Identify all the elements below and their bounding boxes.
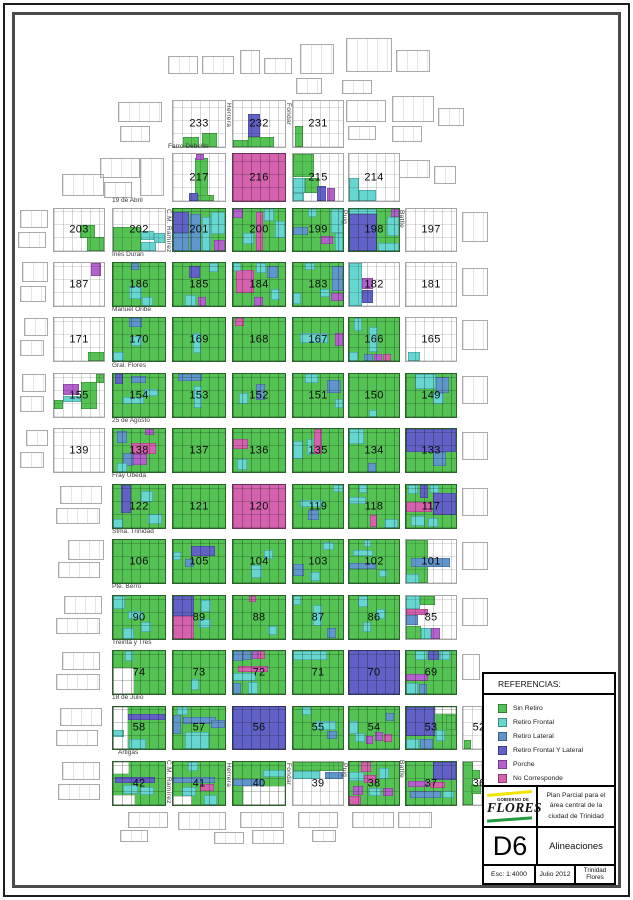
parcel bbox=[115, 374, 123, 384]
map-block-184: 184 bbox=[232, 262, 286, 307]
map-block-215: 215 bbox=[292, 153, 344, 202]
map-block-150: 150 bbox=[348, 373, 400, 418]
parcel bbox=[406, 596, 420, 609]
fringe-parcel bbox=[462, 654, 480, 680]
fringe-parcel bbox=[68, 540, 104, 560]
block-number: 170 bbox=[113, 333, 165, 345]
parcel bbox=[421, 628, 431, 639]
block-number: 73 bbox=[173, 666, 225, 678]
block-number: 165 bbox=[406, 333, 456, 345]
logo-flores-text: FLORES bbox=[487, 800, 542, 816]
parcel bbox=[87, 237, 104, 251]
fringe-parcel bbox=[64, 596, 102, 614]
sheet-row: D6 Alineaciones bbox=[484, 828, 614, 866]
parcel bbox=[189, 193, 198, 201]
block-number: 71 bbox=[293, 666, 343, 678]
street-name: Artigas bbox=[118, 749, 138, 756]
street-name: Stma. Trinidad bbox=[112, 528, 154, 535]
parcel bbox=[233, 209, 243, 218]
map-block-186: 186 bbox=[112, 262, 166, 307]
parcel bbox=[293, 651, 327, 660]
parcel bbox=[198, 297, 206, 306]
map-block-155: 155 bbox=[53, 373, 105, 418]
map-block-165: 165 bbox=[405, 317, 457, 362]
parcel bbox=[419, 684, 427, 694]
parcel bbox=[406, 739, 419, 749]
street-name: C.M. Ramírez bbox=[165, 209, 172, 253]
map-block-187: 187 bbox=[53, 262, 105, 307]
parcel bbox=[321, 236, 333, 244]
street-name: Inés Duran bbox=[112, 251, 144, 258]
parcel bbox=[141, 242, 156, 251]
block-number: 53 bbox=[406, 722, 456, 734]
fringe-parcel bbox=[438, 108, 464, 126]
map-block-216: 216 bbox=[232, 153, 286, 202]
street-name: Fray Ubeda bbox=[112, 472, 146, 479]
parcel bbox=[198, 195, 214, 201]
legend-item: Retiro Frontal Y Lateral bbox=[498, 743, 614, 757]
legend-label: No Corresponde bbox=[513, 775, 563, 782]
block-number: 183 bbox=[293, 278, 343, 290]
legend-swatch bbox=[498, 704, 507, 713]
parcel bbox=[359, 485, 367, 493]
parcel bbox=[364, 540, 371, 547]
parcel bbox=[248, 137, 274, 147]
parcel bbox=[293, 193, 304, 201]
parcel bbox=[408, 352, 420, 361]
parcel bbox=[359, 190, 376, 201]
parcel bbox=[420, 739, 433, 749]
fringe-parcel bbox=[20, 210, 48, 228]
parcel bbox=[91, 263, 101, 276]
block-number: 106 bbox=[113, 555, 165, 567]
block-number: 152 bbox=[233, 389, 285, 401]
map-block-86: 86 bbox=[348, 595, 400, 640]
map-block-54: 54 bbox=[348, 706, 400, 750]
block-number: 216 bbox=[233, 171, 285, 183]
fringe-parcel bbox=[462, 542, 488, 570]
fringe-parcel bbox=[20, 286, 46, 302]
parcel bbox=[302, 707, 311, 715]
map-block-166: 166 bbox=[348, 317, 400, 362]
legend-label: Porche bbox=[513, 761, 535, 768]
fringe-parcel bbox=[396, 160, 430, 178]
block-number: 168 bbox=[233, 333, 285, 345]
fringe-parcel bbox=[168, 56, 198, 74]
map-block-182: 182 bbox=[348, 262, 400, 307]
block-number: 87 bbox=[293, 611, 343, 623]
parcel bbox=[123, 628, 133, 639]
fringe-parcel bbox=[60, 708, 102, 726]
map-block-149: 149 bbox=[405, 373, 457, 418]
parcel bbox=[131, 376, 147, 383]
block-number: 169 bbox=[173, 333, 225, 345]
map-block-121: 121 bbox=[172, 484, 226, 529]
fringe-parcel bbox=[462, 268, 488, 296]
parcel bbox=[428, 518, 438, 527]
block-number: 199 bbox=[293, 224, 343, 236]
map-block-134: 134 bbox=[348, 428, 400, 473]
fringe-parcel bbox=[398, 812, 432, 828]
parcel bbox=[317, 186, 326, 201]
fringe-parcel bbox=[58, 562, 100, 578]
block-number: 57 bbox=[173, 722, 225, 734]
parcel bbox=[349, 352, 358, 361]
legend-item: Retiro Frontal bbox=[498, 715, 614, 729]
block-number: 102 bbox=[349, 555, 399, 567]
map-block-167: 167 bbox=[292, 317, 344, 362]
block-number: 215 bbox=[293, 171, 343, 183]
fringe-parcel bbox=[202, 56, 234, 74]
map-block-89: 89 bbox=[172, 595, 226, 640]
block-number: 197 bbox=[406, 224, 456, 236]
parcel bbox=[214, 240, 225, 251]
block-number: 39 bbox=[293, 777, 343, 789]
fringe-parcel bbox=[462, 212, 488, 242]
map-block-183: 183 bbox=[292, 262, 344, 307]
parcel bbox=[268, 626, 276, 635]
parcel bbox=[384, 519, 398, 528]
parcel bbox=[235, 318, 244, 326]
fringe-parcel bbox=[20, 452, 44, 468]
map-block-153: 153 bbox=[172, 373, 226, 418]
parcel bbox=[293, 596, 301, 605]
map-block-203: 203 bbox=[53, 208, 105, 252]
fringe-parcel bbox=[346, 38, 392, 72]
parcel bbox=[293, 293, 301, 304]
fringe-parcel bbox=[352, 812, 394, 828]
parcel bbox=[323, 542, 334, 551]
title-block: REFERENCIAS: Sin RetiroRetiro FrontalRet… bbox=[482, 672, 616, 885]
parcel bbox=[420, 485, 428, 498]
map-block-117: 117 bbox=[405, 484, 457, 529]
map-block-102: 102 bbox=[348, 539, 400, 584]
block-number: 151 bbox=[293, 389, 343, 401]
block-number: 133 bbox=[406, 444, 456, 456]
map-block-199: 199 bbox=[292, 208, 344, 252]
parcel bbox=[411, 516, 425, 526]
map-block-72: 72 bbox=[232, 650, 286, 695]
map-block-103: 103 bbox=[292, 539, 344, 584]
fringe-parcel bbox=[462, 598, 488, 626]
legend-label: Retiro Frontal bbox=[513, 719, 554, 726]
block-number: 201 bbox=[173, 224, 225, 236]
parcel bbox=[383, 354, 391, 361]
parcel bbox=[188, 762, 198, 771]
parcel bbox=[263, 770, 285, 777]
map-block-170: 170 bbox=[112, 317, 166, 362]
fringe-parcel bbox=[214, 832, 244, 844]
map-block-56: 56 bbox=[232, 706, 286, 750]
parcel bbox=[173, 796, 192, 805]
parcel bbox=[204, 795, 216, 805]
parcel bbox=[370, 515, 377, 527]
legend-item: Porche bbox=[498, 757, 614, 771]
parcel bbox=[331, 293, 343, 301]
parcel bbox=[379, 570, 387, 577]
parcel bbox=[349, 429, 364, 444]
map-block-85: 85 bbox=[405, 595, 457, 640]
parcel bbox=[271, 289, 279, 300]
block-number: 74 bbox=[113, 666, 165, 678]
logo-yellow-stripe bbox=[487, 790, 532, 796]
map-block-202: 202 bbox=[112, 208, 166, 252]
map-block-120: 120 bbox=[232, 484, 286, 529]
street-name: Treinta y Tres bbox=[112, 639, 152, 646]
legend-items: Sin RetiroRetiro FrontalRetiro LateralRe… bbox=[484, 695, 614, 787]
block-number: 200 bbox=[233, 224, 285, 236]
street-name: Manuel Oribe bbox=[112, 306, 151, 313]
block-number: 185 bbox=[173, 278, 225, 290]
block-number: 182 bbox=[349, 278, 399, 290]
meta-row: Esc: 1:4000 Julio 2012 Trinidad Flores bbox=[484, 866, 614, 883]
fringe-parcel bbox=[120, 126, 150, 142]
parcel bbox=[374, 354, 382, 361]
street-name: Puig bbox=[341, 210, 348, 224]
fringe-parcel bbox=[346, 100, 386, 122]
map-block-105: 105 bbox=[172, 539, 226, 584]
map-block-40: 40 bbox=[232, 761, 286, 806]
parcel bbox=[129, 739, 147, 749]
parcel bbox=[363, 622, 371, 632]
block-number: 121 bbox=[173, 500, 225, 512]
fringe-parcel bbox=[240, 812, 284, 828]
block-number: 56 bbox=[233, 722, 285, 734]
fringe-parcel bbox=[240, 50, 260, 74]
parcel bbox=[431, 628, 440, 639]
parcel bbox=[254, 297, 263, 306]
block-number: 155 bbox=[54, 389, 104, 401]
block-number: 122 bbox=[113, 500, 165, 512]
map-block-136: 136 bbox=[232, 428, 286, 473]
map-block-217: 217 bbox=[172, 153, 226, 202]
map-block-118: 118 bbox=[348, 484, 400, 529]
block-number: 37 bbox=[406, 777, 456, 789]
legend-item: Sin Retiro bbox=[498, 701, 614, 715]
parcel bbox=[369, 788, 381, 797]
parcel bbox=[258, 651, 265, 659]
map-block-214: 214 bbox=[348, 153, 400, 202]
map-block-201: 201 bbox=[172, 208, 226, 252]
street-name: 25 de Agosto bbox=[112, 417, 150, 424]
block-number: 119 bbox=[293, 500, 343, 512]
parcel bbox=[185, 732, 209, 749]
fringe-parcel bbox=[312, 830, 336, 842]
block-number: 214 bbox=[349, 171, 399, 183]
parcel bbox=[113, 596, 125, 609]
legend-label: Retiro Frontal Y Lateral bbox=[513, 747, 583, 754]
map-block-185: 185 bbox=[172, 262, 226, 307]
map-block-101: 101 bbox=[405, 539, 457, 584]
parcel bbox=[142, 297, 152, 306]
block-number: 171 bbox=[54, 333, 104, 345]
fringe-parcel bbox=[24, 318, 48, 336]
map-block-181: 181 bbox=[405, 262, 457, 307]
fringe-parcel bbox=[60, 486, 102, 504]
block-number: 166 bbox=[349, 333, 399, 345]
map-block-71: 71 bbox=[292, 650, 344, 695]
parcel bbox=[386, 713, 394, 721]
map-block-231: 231 bbox=[292, 100, 344, 148]
map-block-42: 42 bbox=[112, 761, 166, 806]
map-block-122: 122 bbox=[112, 484, 166, 529]
parcel bbox=[308, 209, 317, 217]
fringe-parcel bbox=[298, 812, 338, 828]
street-name: Batlle bbox=[398, 760, 405, 778]
map-block-169: 169 bbox=[172, 317, 226, 362]
block-number: 231 bbox=[293, 118, 343, 130]
fringe-parcel bbox=[462, 432, 488, 460]
block-number: 187 bbox=[54, 278, 104, 290]
block-number: 40 bbox=[233, 777, 285, 789]
block-number: 70 bbox=[349, 666, 399, 678]
map-block-232: 232 bbox=[232, 100, 286, 148]
map-block-198: 198 bbox=[348, 208, 400, 252]
parcel bbox=[305, 374, 318, 383]
parcel bbox=[185, 295, 195, 306]
legend-swatch bbox=[498, 774, 507, 783]
parcel bbox=[113, 795, 135, 805]
fringe-parcel bbox=[22, 374, 46, 392]
map-block-151: 151 bbox=[292, 373, 344, 418]
legend-header: REFERENCIAS: bbox=[484, 674, 614, 695]
fringe-parcel bbox=[22, 262, 48, 282]
legend-swatch bbox=[498, 732, 507, 741]
fringe-parcel bbox=[18, 232, 46, 248]
map-block-168: 168 bbox=[232, 317, 286, 362]
block-number: 105 bbox=[173, 555, 225, 567]
map-block-104: 104 bbox=[232, 539, 286, 584]
block-number: 184 bbox=[233, 278, 285, 290]
block-number: 217 bbox=[173, 171, 225, 183]
parcel bbox=[428, 651, 439, 660]
block-number: 232 bbox=[233, 118, 285, 130]
fringe-parcel bbox=[140, 158, 164, 196]
parcel bbox=[233, 651, 243, 661]
parcel bbox=[237, 459, 246, 470]
fringe-parcel bbox=[100, 158, 140, 178]
parcel bbox=[305, 263, 315, 270]
fringe-parcel bbox=[296, 78, 322, 94]
scale-label: Esc: 1:4000 bbox=[484, 866, 536, 883]
map-block-135: 135 bbox=[292, 428, 344, 473]
street-name: 18 de Julio bbox=[112, 694, 143, 701]
legend-swatch bbox=[498, 760, 507, 769]
fringe-parcel bbox=[264, 58, 292, 74]
fringe-parcel bbox=[62, 762, 100, 780]
block-number: 134 bbox=[349, 444, 399, 456]
fringe-parcel bbox=[62, 652, 100, 670]
parcel bbox=[191, 679, 199, 690]
parcel bbox=[408, 485, 418, 494]
fringe-parcel bbox=[56, 618, 100, 634]
block-number: 198 bbox=[349, 224, 399, 236]
block-number: 103 bbox=[293, 555, 343, 567]
parcel bbox=[355, 733, 365, 742]
parcel bbox=[249, 596, 256, 602]
legend-label: Retiro Lateral bbox=[513, 733, 554, 740]
map-block-70: 70 bbox=[348, 650, 400, 695]
parcel bbox=[113, 352, 124, 361]
fringe-parcel bbox=[128, 812, 168, 828]
logo-green-stripe bbox=[487, 816, 532, 822]
block-number: 69 bbox=[406, 666, 456, 678]
parcel bbox=[349, 796, 361, 805]
fringe-parcel bbox=[20, 396, 44, 412]
block-number: 86 bbox=[349, 611, 399, 623]
fringe-parcel bbox=[20, 340, 44, 356]
sheet-title: Alineaciones bbox=[538, 828, 614, 864]
parcel bbox=[406, 626, 421, 639]
fringe-parcel bbox=[26, 430, 48, 446]
parcel bbox=[145, 429, 153, 435]
date-label: Julio 2012 bbox=[536, 866, 576, 883]
map-block-90: 90 bbox=[112, 595, 166, 640]
block-number: 138 bbox=[113, 444, 165, 456]
block-number: 233 bbox=[173, 118, 225, 130]
block-number: 58 bbox=[113, 722, 165, 734]
street-name: Gral. Flores bbox=[112, 362, 146, 369]
parcel bbox=[415, 651, 427, 660]
map-block-171: 171 bbox=[53, 317, 105, 362]
parcel bbox=[420, 596, 435, 605]
map-block-152: 152 bbox=[232, 373, 286, 418]
flores-logo: GOBIERNO DE FLORES bbox=[484, 787, 538, 826]
fringe-parcel bbox=[62, 174, 104, 196]
block-number: 54 bbox=[349, 722, 399, 734]
parcel bbox=[335, 233, 343, 251]
legend-title: REFERENCIAS: bbox=[498, 679, 561, 689]
parcel bbox=[435, 707, 456, 714]
parcel bbox=[358, 596, 368, 607]
map-block-88: 88 bbox=[232, 595, 286, 640]
parcel bbox=[256, 263, 266, 273]
parcel bbox=[54, 400, 63, 409]
street-name: 19 de Abril bbox=[112, 197, 143, 204]
street-name: Herrera bbox=[225, 103, 232, 127]
fringe-parcel bbox=[342, 80, 372, 94]
parcel bbox=[443, 791, 454, 798]
parcel bbox=[440, 651, 450, 660]
block-number: 117 bbox=[406, 500, 456, 512]
map-block-119: 119 bbox=[292, 484, 344, 529]
legend-swatch bbox=[498, 718, 507, 727]
fringe-parcel bbox=[120, 830, 148, 842]
parcel bbox=[264, 209, 273, 221]
fringe-parcel bbox=[118, 102, 162, 122]
fringe-parcel bbox=[462, 488, 488, 516]
block-number: 202 bbox=[113, 224, 165, 236]
parcel bbox=[129, 318, 143, 327]
parcel bbox=[327, 188, 335, 201]
block-number: 101 bbox=[406, 555, 456, 567]
fringe-parcel bbox=[392, 126, 422, 142]
street-name: C.M. Ramírez bbox=[165, 760, 172, 804]
logo-row: GOBIERNO DE FLORES Plan Parcial para el … bbox=[484, 787, 614, 828]
block-number: 104 bbox=[233, 555, 285, 567]
block-number: 72 bbox=[233, 666, 285, 678]
map-block-137: 137 bbox=[172, 428, 226, 473]
block-number: 181 bbox=[406, 278, 456, 290]
fringe-parcel bbox=[104, 182, 132, 198]
parcel bbox=[430, 485, 439, 493]
street-name: Fondar bbox=[285, 103, 292, 125]
fringe-parcel bbox=[434, 166, 456, 184]
map-block-38: 38 bbox=[348, 761, 400, 806]
parcel bbox=[410, 791, 441, 798]
block-number: 186 bbox=[113, 278, 165, 290]
block-number: 55 bbox=[293, 722, 343, 734]
